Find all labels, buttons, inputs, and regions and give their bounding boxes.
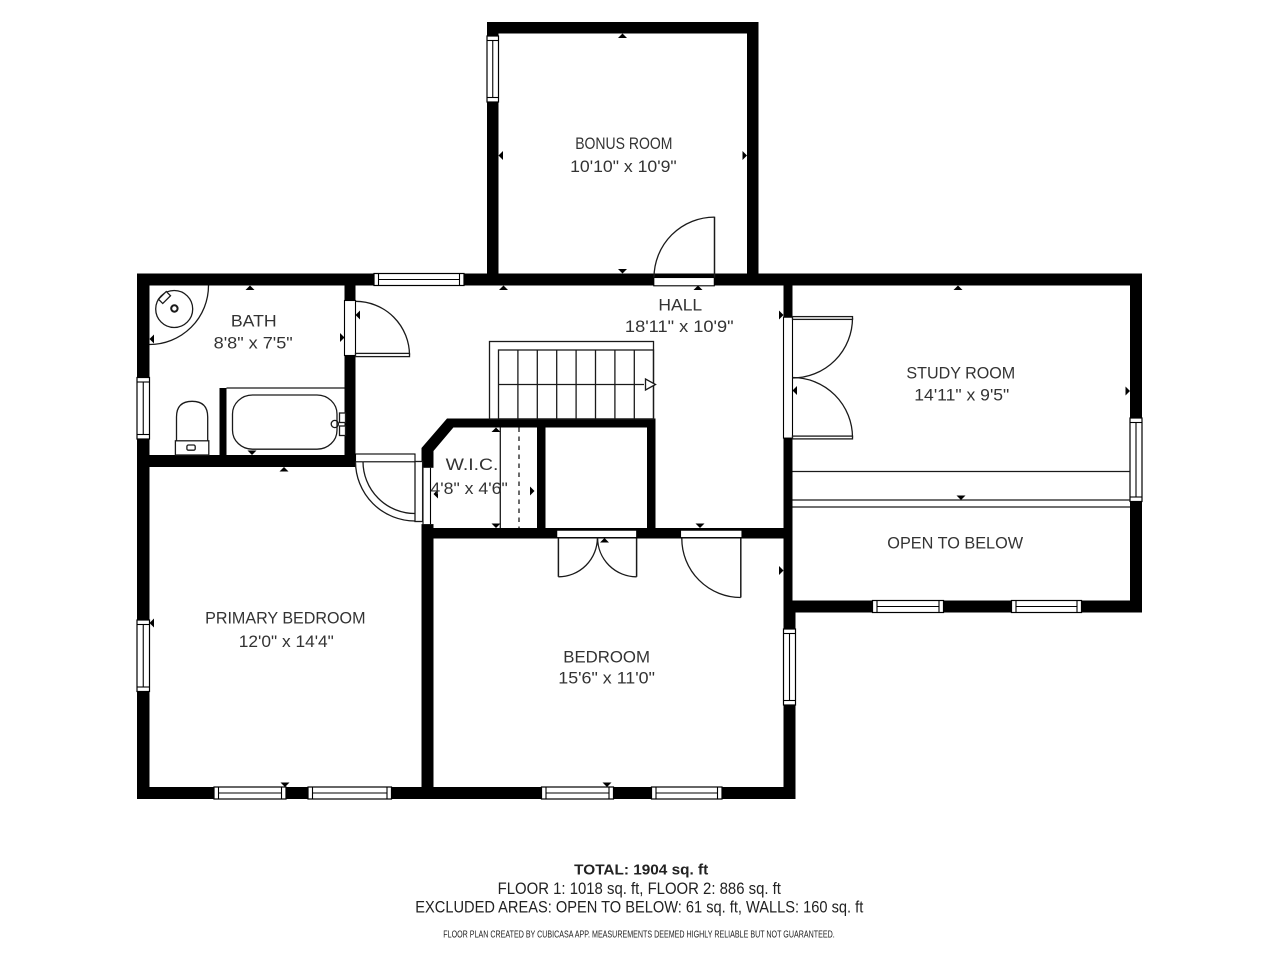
svg-text:18'11" x 10'9": 18'11" x 10'9" <box>625 317 734 336</box>
svg-text:14'11" x 9'5": 14'11" x 9'5" <box>914 386 1009 405</box>
svg-text:12'0" x 14'4": 12'0" x 14'4" <box>239 632 334 651</box>
svg-text:BEDROOM: BEDROOM <box>563 648 650 667</box>
svg-text:FLOOR PLAN CREATED BY CUBICASA: FLOOR PLAN CREATED BY CUBICASA APP. MEAS… <box>443 930 834 941</box>
svg-text:10'10" x 10'9": 10'10" x 10'9" <box>570 157 677 176</box>
svg-text:HALL: HALL <box>658 296 702 315</box>
svg-text:EXCLUDED AREAS: OPEN TO BELOW:: EXCLUDED AREAS: OPEN TO BELOW: 61 sq. ft… <box>415 897 863 916</box>
svg-text:OPEN TO BELOW: OPEN TO BELOW <box>887 534 1023 553</box>
svg-text:W.I.C.: W.I.C. <box>446 455 499 474</box>
svg-text:TOTAL: 1904 sq. ft: TOTAL: 1904 sq. ft <box>574 862 708 879</box>
svg-text:STUDY ROOM: STUDY ROOM <box>906 364 1015 383</box>
svg-text:BATH: BATH <box>231 312 277 331</box>
svg-text:8'8" x 7'5": 8'8" x 7'5" <box>214 334 293 353</box>
svg-text:PRIMARY BEDROOM: PRIMARY BEDROOM <box>205 609 365 628</box>
svg-text:BONUS ROOM: BONUS ROOM <box>575 134 672 153</box>
svg-text:4'8" x 4'6": 4'8" x 4'6" <box>430 479 507 498</box>
svg-text:15'6" x 11'0": 15'6" x 11'0" <box>558 669 655 688</box>
svg-text:FLOOR 1: 1018 sq. ft, FLOOR 2:: FLOOR 1: 1018 sq. ft, FLOOR 2: 886 sq. f… <box>498 879 782 898</box>
